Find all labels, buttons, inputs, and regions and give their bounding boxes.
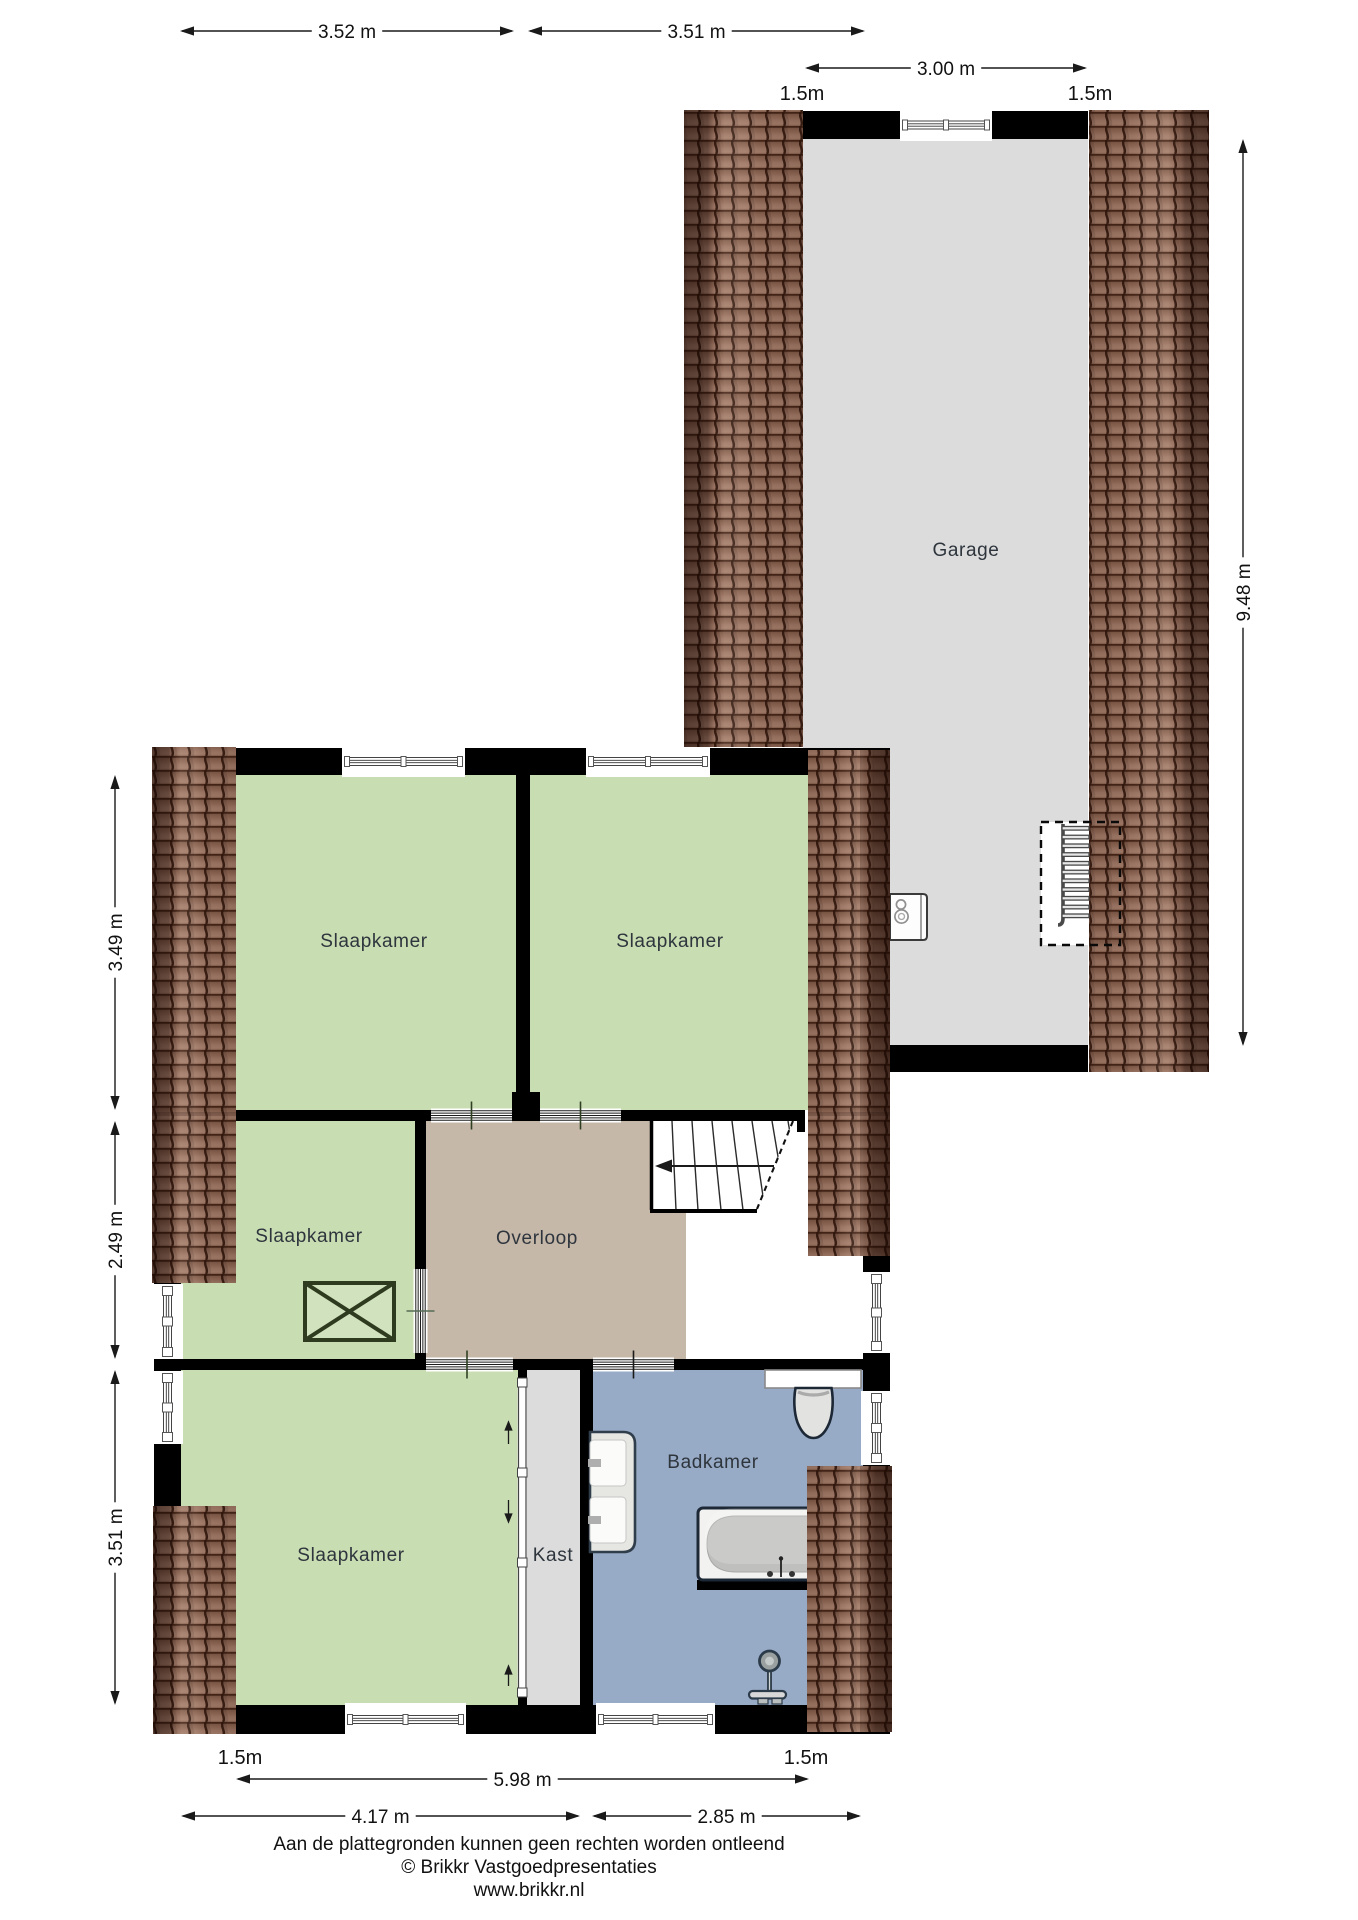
svg-text:3.52 m: 3.52 m xyxy=(318,22,376,43)
svg-text:Aan de plattegronden kunnen ge: Aan de plattegronden kunnen geen rechten… xyxy=(273,1834,784,1855)
svg-text:4.17 m: 4.17 m xyxy=(351,1807,409,1828)
svg-text:www.brikkr.nl: www.brikkr.nl xyxy=(473,1880,585,1901)
svg-text:Slaapkamer: Slaapkamer xyxy=(297,1545,404,1566)
svg-text:5.98 m: 5.98 m xyxy=(493,1770,551,1791)
svg-text:1.5m: 1.5m xyxy=(780,83,824,105)
svg-text:Overloop: Overloop xyxy=(496,1228,578,1249)
svg-text:1.5m: 1.5m xyxy=(1068,83,1112,105)
svg-text:1.5m: 1.5m xyxy=(784,1747,828,1769)
svg-text:3.49 m: 3.49 m xyxy=(106,913,127,971)
svg-text:Badkamer: Badkamer xyxy=(667,1452,758,1473)
svg-text:© Brikkr Vastgoedpresentaties: © Brikkr Vastgoedpresentaties xyxy=(401,1857,657,1878)
svg-text:Slaapkamer: Slaapkamer xyxy=(616,931,723,952)
svg-text:3.51 m: 3.51 m xyxy=(106,1508,127,1566)
svg-text:3.51 m: 3.51 m xyxy=(667,22,725,43)
svg-text:2.85 m: 2.85 m xyxy=(697,1807,755,1828)
svg-text:2.49 m: 2.49 m xyxy=(106,1211,127,1269)
svg-text:Slaapkamer: Slaapkamer xyxy=(320,931,427,952)
svg-text:Garage: Garage xyxy=(933,540,1000,561)
svg-text:1.5m: 1.5m xyxy=(218,1747,262,1769)
svg-text:Kast: Kast xyxy=(533,1545,574,1566)
svg-text:3.00 m: 3.00 m xyxy=(917,59,975,80)
svg-text:9.48 m: 9.48 m xyxy=(1234,563,1255,621)
svg-text:Slaapkamer: Slaapkamer xyxy=(255,1226,362,1247)
